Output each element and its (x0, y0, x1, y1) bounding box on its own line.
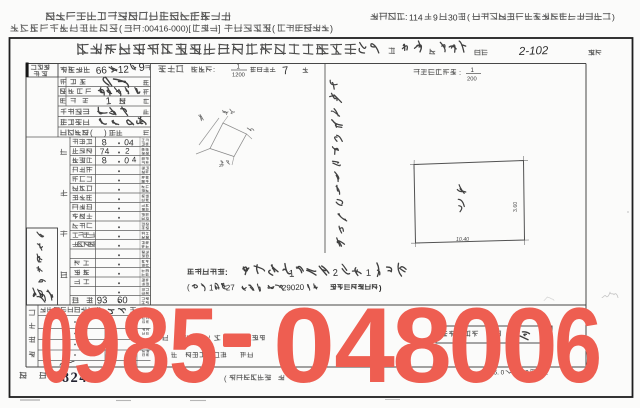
svg-text:0: 0 (40, 287, 73, 405)
svg-text:0: 0 (449, 285, 505, 404)
svg-text:8: 8 (392, 285, 452, 405)
svg-text:6: 6 (554, 285, 602, 405)
svg-text:0: 0 (273, 286, 335, 405)
svg-text:9: 9 (72, 285, 121, 405)
svg-text:5: 5 (169, 285, 218, 405)
svg-text:0: 0 (502, 285, 558, 404)
svg-text:8: 8 (121, 285, 170, 405)
svg-text:4: 4 (334, 285, 395, 405)
